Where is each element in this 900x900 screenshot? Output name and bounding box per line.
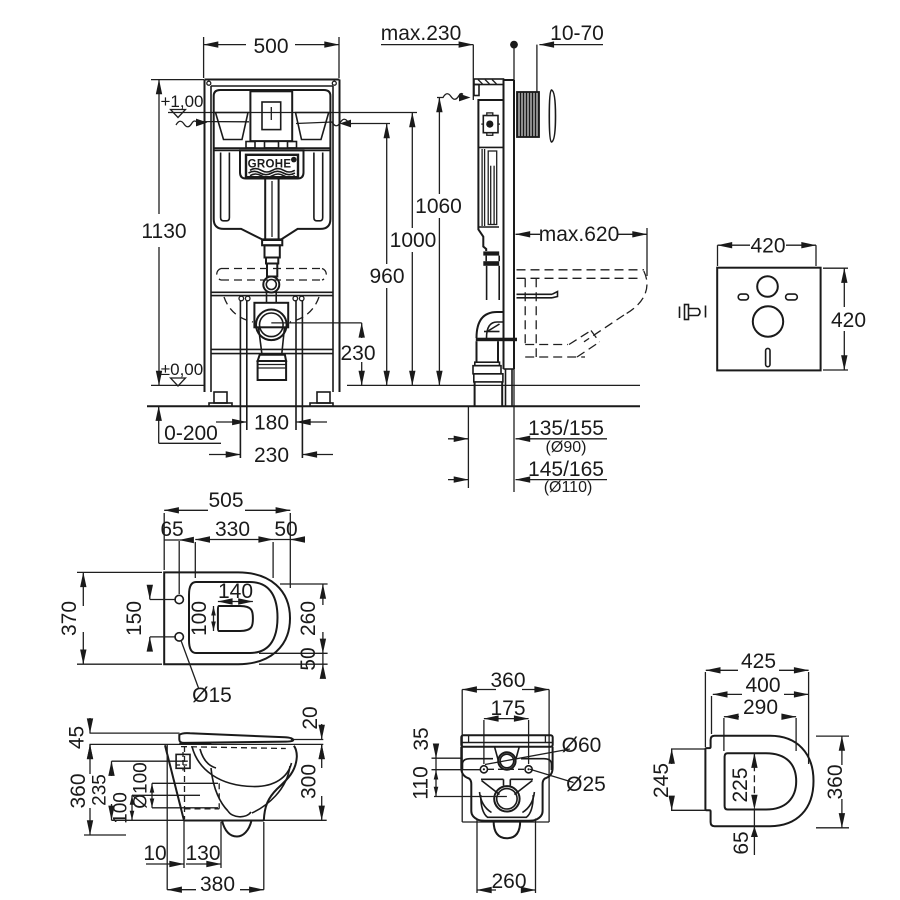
- svg-text:65: 65: [730, 831, 753, 854]
- svg-text:330: 330: [215, 518, 250, 541]
- svg-text:245: 245: [650, 763, 673, 798]
- svg-text:100: 100: [188, 601, 211, 636]
- svg-text:50: 50: [297, 647, 320, 670]
- svg-text:max.230: max.230: [381, 22, 462, 45]
- svg-text:Ø25: Ø25: [566, 773, 606, 796]
- svg-text:100: 100: [111, 792, 132, 824]
- svg-text:230: 230: [254, 444, 289, 467]
- svg-text:65: 65: [160, 518, 183, 541]
- svg-text:180: 180: [254, 412, 289, 435]
- svg-text:420: 420: [750, 235, 785, 258]
- svg-text:425: 425: [741, 650, 776, 673]
- svg-text:1060: 1060: [415, 195, 462, 218]
- svg-text:360: 360: [490, 669, 525, 692]
- svg-text:135/155: 135/155: [528, 417, 604, 440]
- svg-text:50: 50: [274, 518, 297, 541]
- svg-text:20: 20: [299, 706, 322, 729]
- svg-text:230: 230: [340, 342, 375, 365]
- svg-text:Ø60: Ø60: [562, 734, 602, 757]
- svg-text:400: 400: [745, 674, 780, 697]
- svg-text:140: 140: [218, 580, 253, 603]
- svg-text:290: 290: [743, 696, 778, 719]
- svg-text:(Ø110): (Ø110): [544, 479, 593, 496]
- svg-text:0-200: 0-200: [164, 422, 218, 445]
- svg-text:360: 360: [67, 773, 90, 808]
- svg-text:±0,00: ±0,00: [161, 360, 203, 379]
- svg-text:505: 505: [208, 489, 243, 512]
- svg-text:1000: 1000: [390, 229, 437, 252]
- svg-text:110: 110: [410, 766, 433, 799]
- svg-text:225: 225: [729, 767, 752, 802]
- svg-text:10: 10: [143, 842, 166, 865]
- svg-text:260: 260: [297, 601, 320, 636]
- svg-text:150: 150: [123, 601, 146, 636]
- svg-text:420: 420: [831, 309, 866, 332]
- svg-text:380: 380: [200, 873, 235, 896]
- svg-text:35: 35: [410, 727, 433, 750]
- svg-text:130: 130: [185, 842, 220, 865]
- svg-text:360: 360: [824, 764, 847, 799]
- svg-text:175: 175: [490, 697, 525, 720]
- svg-text:+1,00: +1,00: [160, 92, 203, 111]
- svg-text:370: 370: [58, 601, 81, 636]
- svg-text:1130: 1130: [141, 220, 186, 243]
- svg-text:960: 960: [369, 265, 404, 288]
- svg-text:500: 500: [253, 35, 288, 58]
- svg-text:Ø15: Ø15: [192, 684, 232, 707]
- svg-text:45: 45: [66, 726, 89, 749]
- svg-text:max.620: max.620: [539, 223, 620, 246]
- svg-text:235: 235: [90, 774, 111, 806]
- svg-text:145/165: 145/165: [528, 458, 604, 481]
- svg-text:Ø100: Ø100: [131, 762, 152, 808]
- svg-text:260: 260: [491, 870, 526, 893]
- svg-text:300: 300: [298, 764, 321, 799]
- svg-text:10-70: 10-70: [550, 22, 604, 45]
- svg-text:(Ø90): (Ø90): [546, 439, 587, 456]
